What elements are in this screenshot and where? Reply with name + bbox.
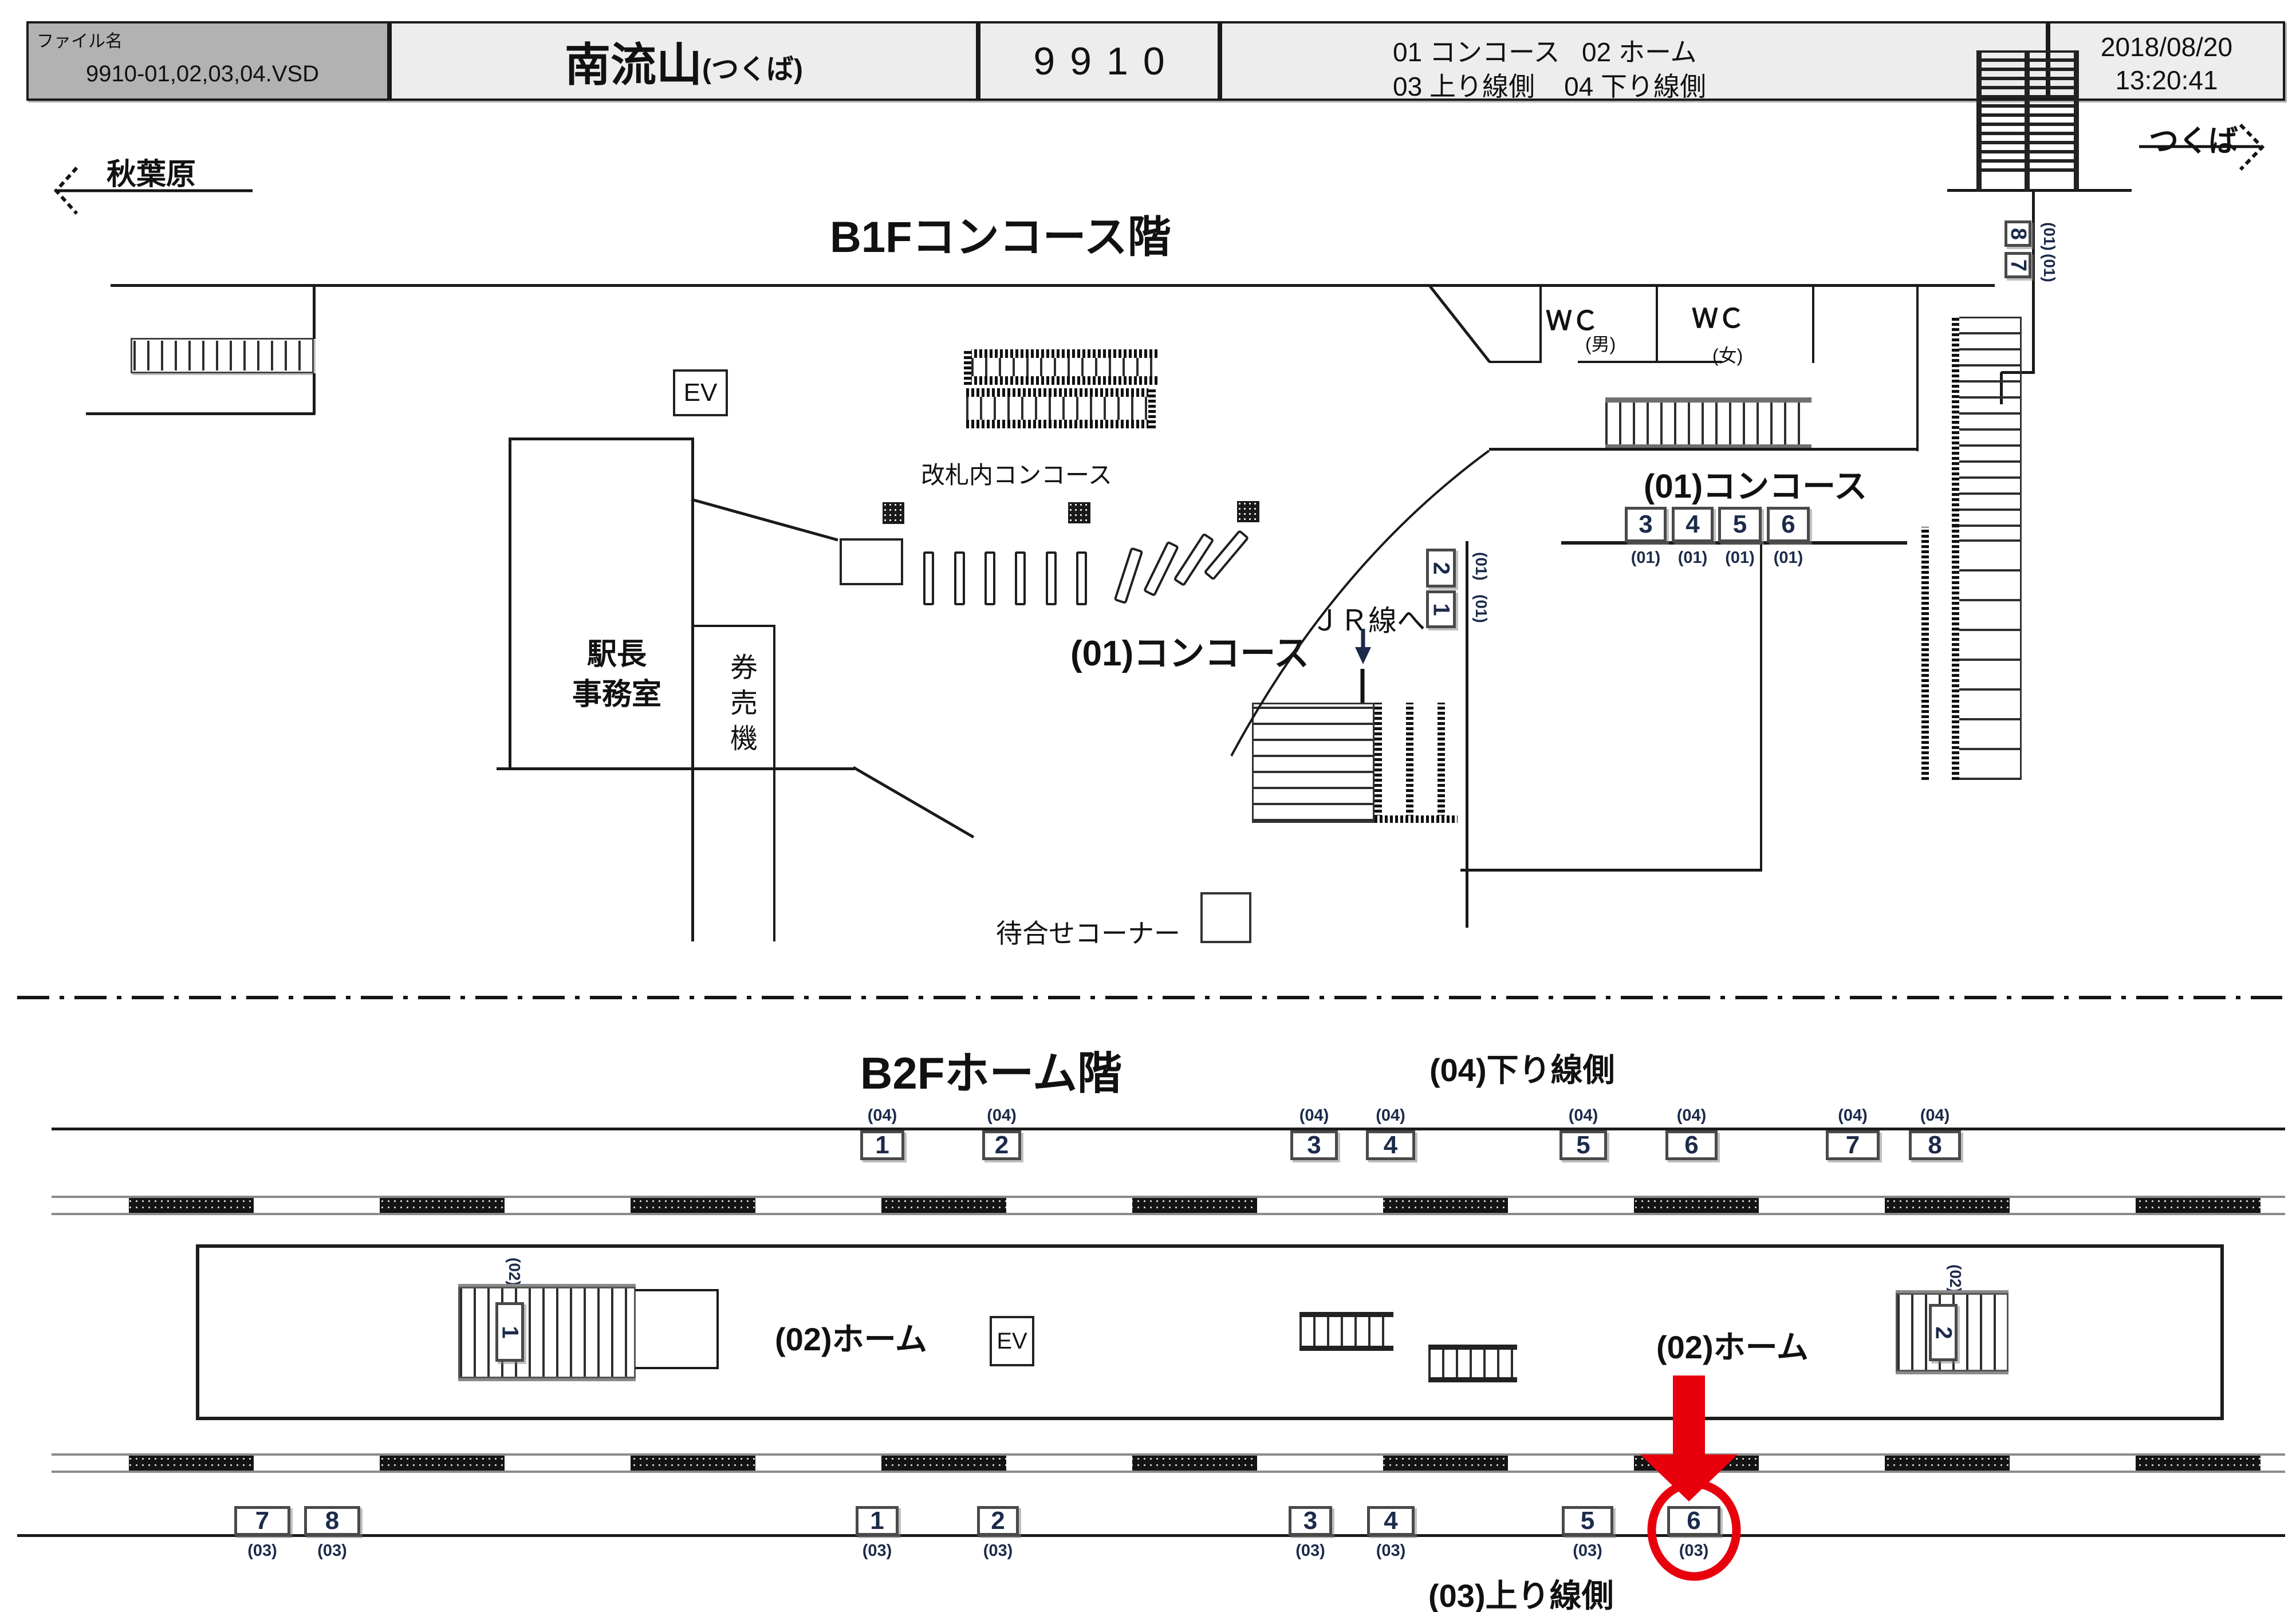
red-highlight-circle (1652, 1484, 1736, 1576)
wall-funnel-upper (691, 499, 838, 540)
wall-concourse-arc (1231, 451, 1489, 756)
station-diagram-page: ファイル名 9910-01,02,03,04.VSD 南流山 (つくば) 991… (0, 0, 2296, 1612)
overlay-graphics (0, 0, 2296, 1612)
down-arrow-head (1355, 647, 1371, 664)
wall-wc-diagonal (1430, 286, 1490, 362)
wall-funnel-lower (853, 767, 974, 837)
ticket-gates-diagonal (1115, 531, 1248, 603)
